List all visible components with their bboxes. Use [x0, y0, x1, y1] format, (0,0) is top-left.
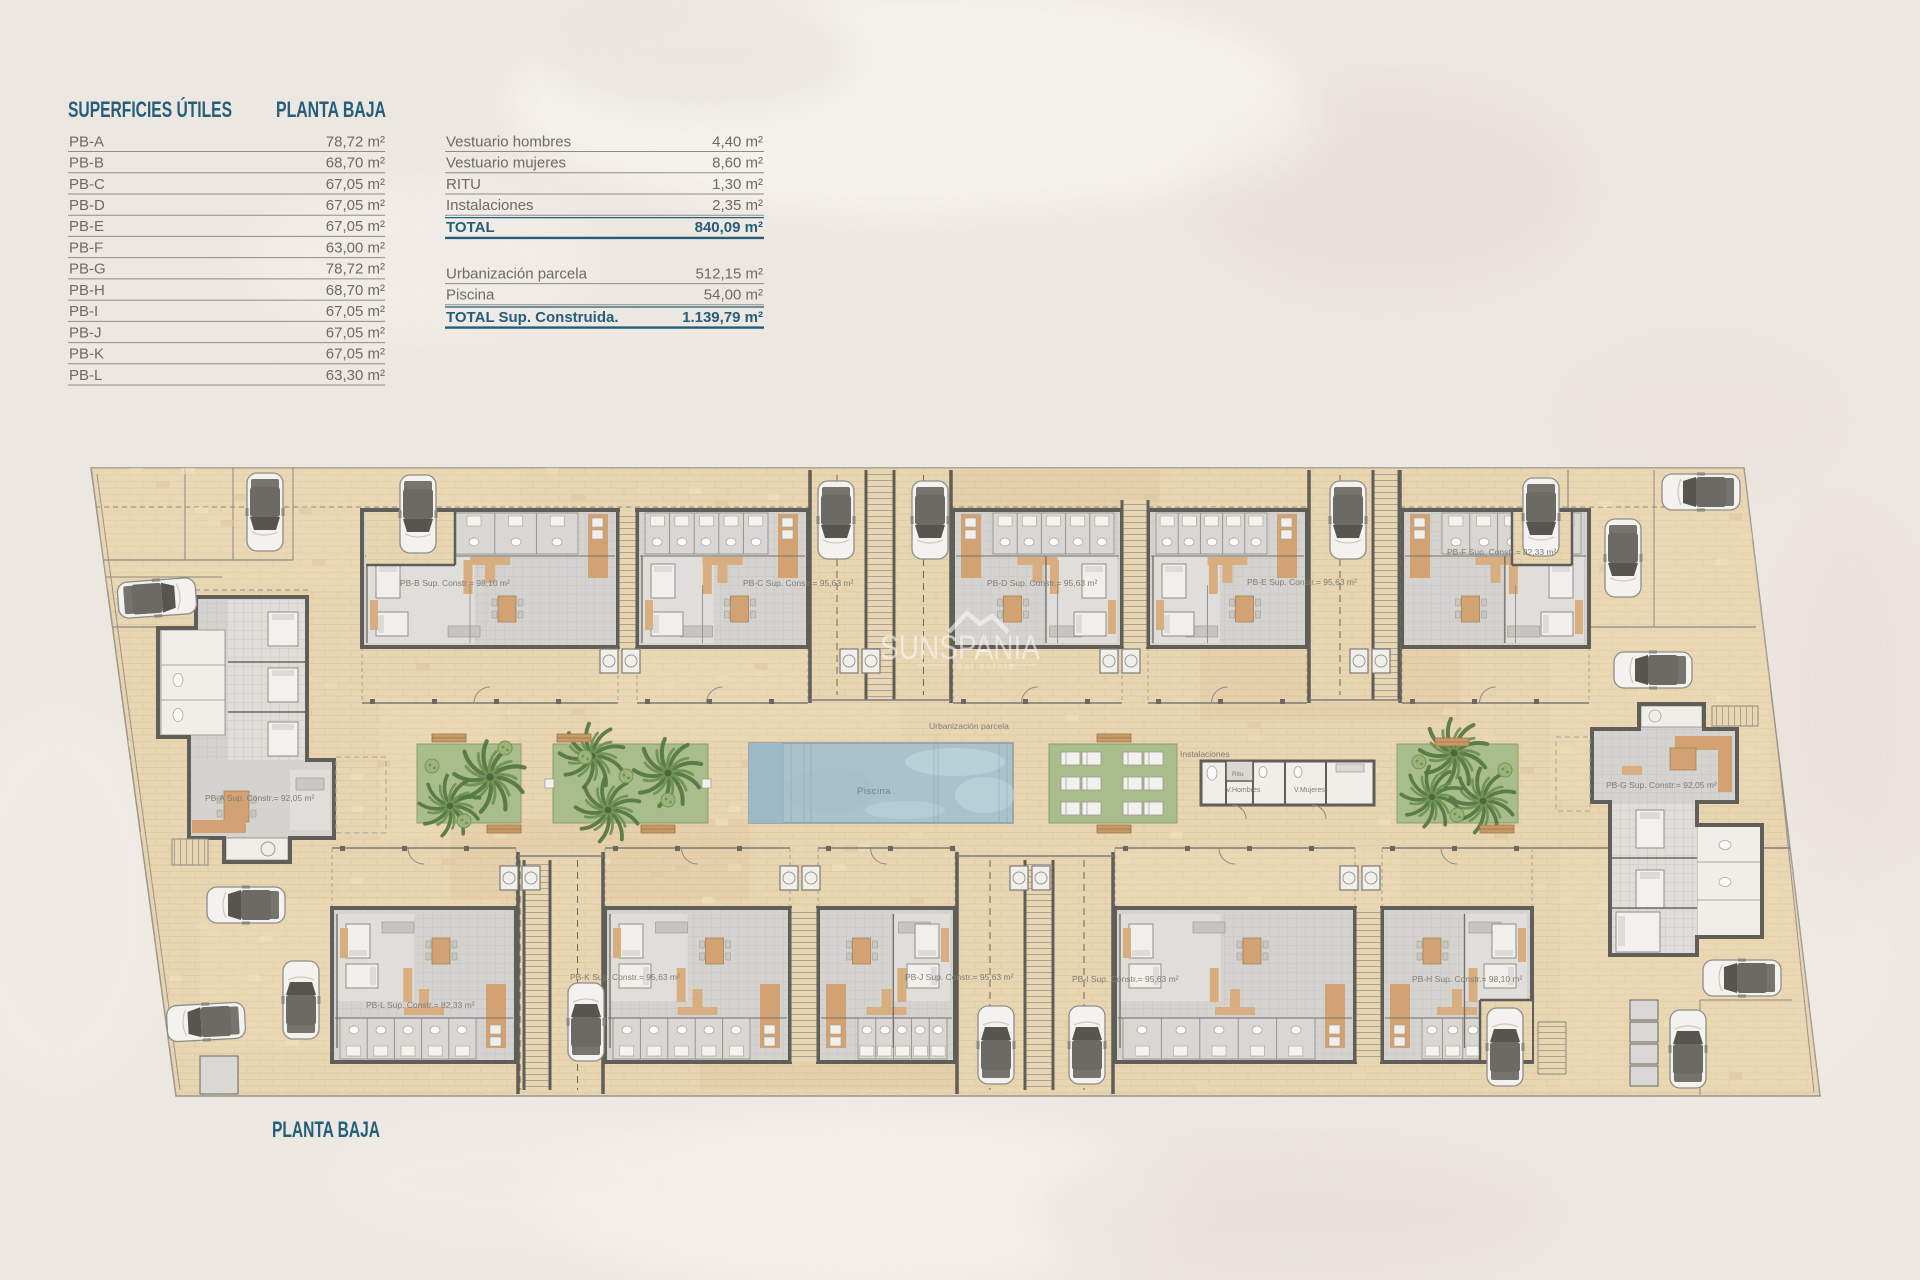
svg-text:67,05 m²: 67,05 m²	[326, 197, 385, 214]
svg-text:PB-G: PB-G	[69, 261, 106, 278]
svg-text:63,00 m²: 63,00 m²	[326, 239, 385, 256]
svg-text:1.139,79 m²: 1.139,79 m²	[682, 309, 763, 326]
svg-text:PB-L: PB-L	[69, 367, 102, 384]
svg-text:PB-G Sup. Constr.= 92,05 m²: PB-G Sup. Constr.= 92,05 m²	[1606, 780, 1717, 790]
svg-text:67,05 m²: 67,05 m²	[326, 324, 385, 341]
svg-text:Ritu: Ritu	[1232, 771, 1244, 778]
svg-text:PB-C: PB-C	[69, 176, 105, 193]
svg-text:PB-E Sup. Constr.= 95,63 m²: PB-E Sup. Constr.= 95,63 m²	[1247, 577, 1357, 587]
svg-text:PB-J Sup. Constr.= 95,63 m²: PB-J Sup. Constr.= 95,63 m²	[905, 972, 1014, 982]
svg-text:2,35 m²: 2,35 m²	[712, 197, 763, 214]
svg-text:RITU: RITU	[446, 176, 481, 193]
svg-text:PB-E: PB-E	[69, 218, 104, 235]
svg-text:PB-J: PB-J	[69, 324, 102, 341]
svg-text:63,30 m²: 63,30 m²	[326, 367, 385, 384]
svg-text:PB-D: PB-D	[69, 197, 105, 214]
svg-text:840,09 m²: 840,09 m²	[695, 219, 763, 236]
svg-text:PB-I: PB-I	[69, 303, 98, 320]
svg-text:68,70 m²: 68,70 m²	[326, 155, 385, 172]
svg-text:78,72 m²: 78,72 m²	[326, 261, 385, 278]
svg-text:54,00 m²: 54,00 m²	[704, 287, 763, 304]
svg-text:Vestuario mujeres: Vestuario mujeres	[446, 155, 566, 172]
svg-text:Instalaciones: Instalaciones	[446, 197, 534, 214]
svg-text:67,05 m²: 67,05 m²	[326, 218, 385, 235]
svg-text:PB-B: PB-B	[69, 155, 104, 172]
svg-text:PB-B Sup. Constr.= 98,10 m²: PB-B Sup. Constr.= 98,10 m²	[400, 578, 510, 588]
svg-text:PLANTA BAJA: PLANTA BAJA	[272, 1117, 380, 1142]
svg-text:67,05 m²: 67,05 m²	[326, 176, 385, 193]
svg-text:PB-C Sup. Constr.= 95,63 m²: PB-C Sup. Constr.= 95,63 m²	[743, 578, 853, 588]
svg-text:TOTAL Sup. Construida.: TOTAL Sup. Construida.	[446, 309, 619, 326]
svg-text:Instalaciones: Instalaciones	[1180, 749, 1230, 759]
svg-text:Vestuario hombres: Vestuario hombres	[446, 133, 571, 150]
svg-text:Piscina: Piscina	[857, 786, 891, 797]
svg-text:PB-A Sup. Constr.= 92,05 m²: PB-A Sup. Constr.= 92,05 m²	[205, 793, 315, 803]
svg-text:PB-F: PB-F	[69, 239, 103, 256]
svg-text:78,72 m²: 78,72 m²	[326, 133, 385, 150]
svg-text:67,05 m²: 67,05 m²	[326, 346, 385, 363]
svg-text:PB-H Sup. Constr.= 98,10 m²: PB-H Sup. Constr.= 98,10 m²	[1412, 974, 1522, 984]
svg-text:PB-D Sup. Constr.= 95,63 m²: PB-D Sup. Constr.= 95,63 m²	[987, 578, 1097, 588]
svg-text:PB-L Sup. Constr.= 82,33 m²: PB-L Sup. Constr.= 82,33 m²	[366, 1000, 475, 1010]
svg-text:SUPERFICIES ÚTILES: SUPERFICIES ÚTILES	[68, 97, 232, 122]
svg-text:PB-K: PB-K	[69, 346, 104, 363]
svg-text:4,40 m²: 4,40 m²	[712, 133, 763, 150]
svg-text:V.Hombres: V.Hombres	[1226, 787, 1261, 794]
svg-text:8,60 m²: 8,60 m²	[712, 155, 763, 172]
svg-text:Urbanización parcela: Urbanización parcela	[446, 265, 588, 282]
svg-text:TOTAL: TOTAL	[446, 219, 495, 236]
svg-text:Urbanización parcela: Urbanización parcela	[929, 721, 1009, 731]
svg-text:PB-H: PB-H	[69, 282, 105, 299]
svg-text:real estate: real estate	[952, 661, 1016, 671]
svg-text:512,15 m²: 512,15 m²	[695, 265, 763, 282]
svg-text:PB-A: PB-A	[69, 133, 104, 150]
svg-text:PLANTA BAJA: PLANTA BAJA	[276, 97, 386, 122]
svg-text:PB-K Sup. Constr.= 95,63 m²: PB-K Sup. Constr.= 95,63 m²	[570, 972, 680, 982]
svg-text:67,05 m²: 67,05 m²	[326, 303, 385, 320]
svg-text:Piscina: Piscina	[446, 287, 495, 304]
svg-text:V.Mujeres: V.Mujeres	[1294, 787, 1325, 794]
svg-text:1,30 m²: 1,30 m²	[712, 176, 763, 193]
svg-text:PB-F Sup. Constr.= 82,33 m²: PB-F Sup. Constr.= 82,33 m²	[1447, 547, 1557, 557]
svg-text:68,70 m²: 68,70 m²	[326, 282, 385, 299]
svg-text:PB-I Sup. Constr.= 95,63 m²: PB-I Sup. Constr.= 95,63 m²	[1072, 974, 1179, 984]
